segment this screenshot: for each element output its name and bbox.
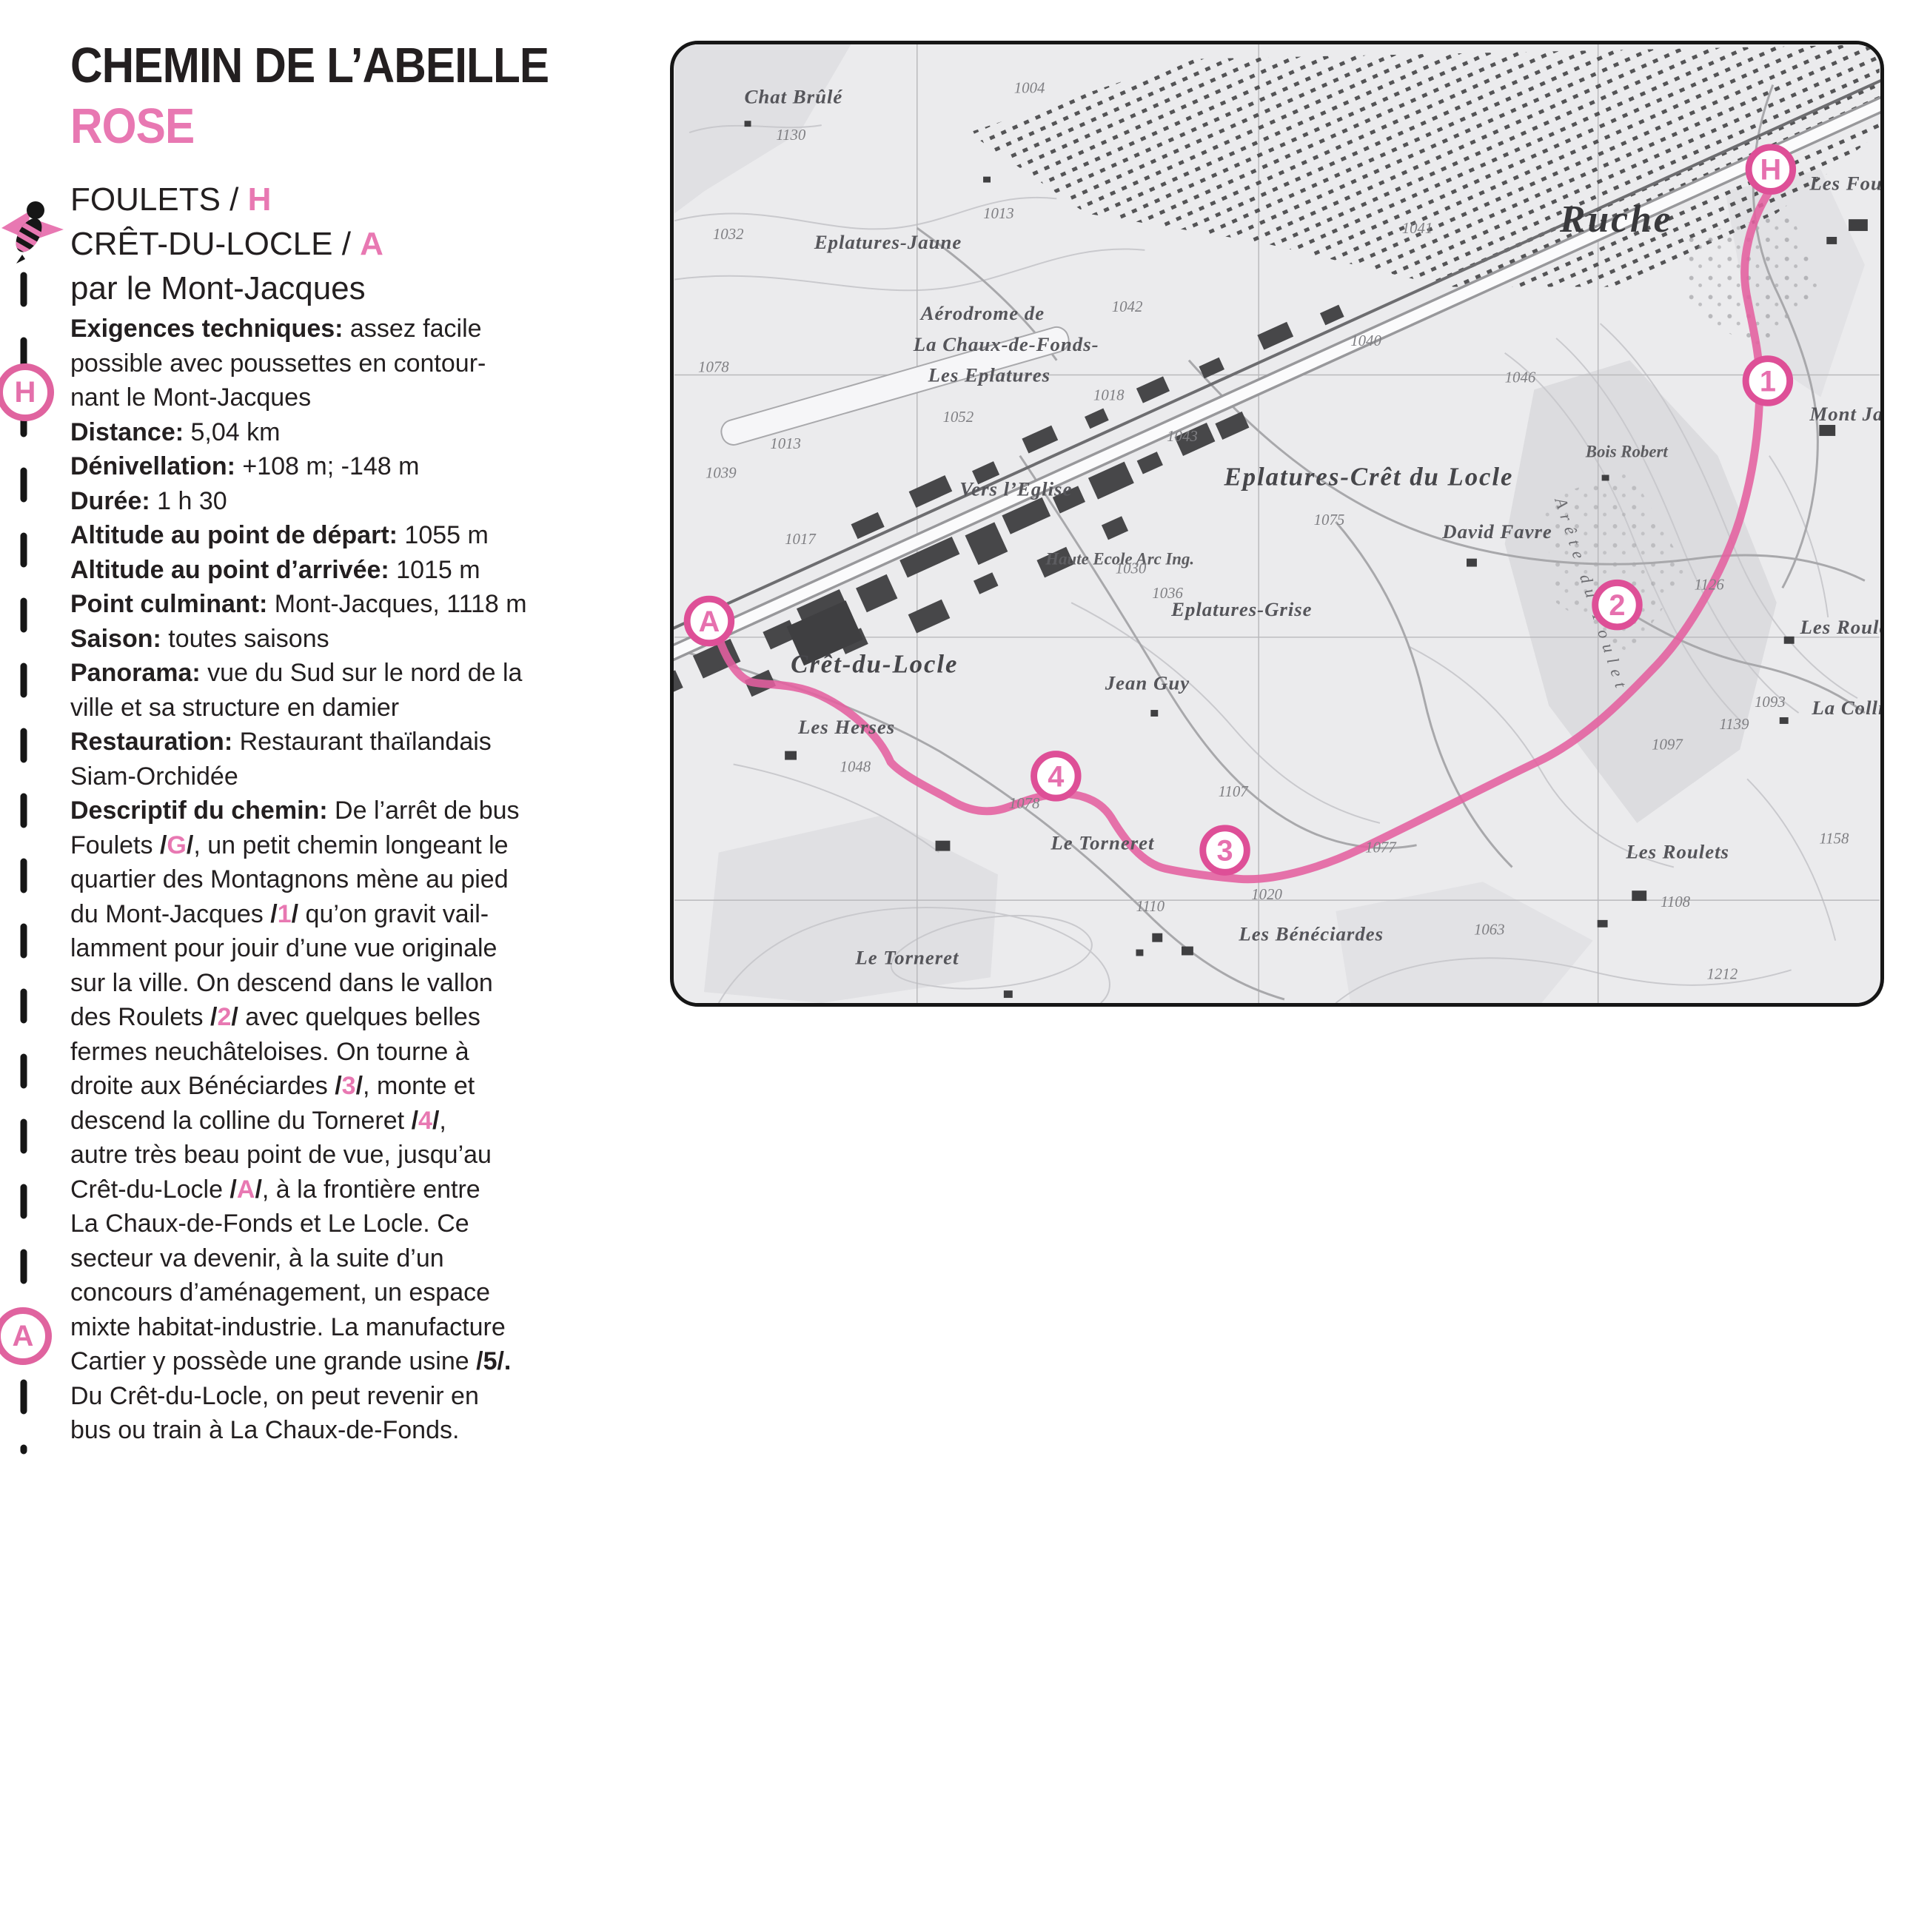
text-segment: Dénivellation: (70, 452, 235, 480)
text-segment: , monte et (363, 1072, 475, 1100)
text-segment: / (229, 1175, 236, 1204)
text-line: Saison: toutes saisons (70, 622, 633, 657)
spot-height: 1039 (706, 463, 737, 481)
text-segment: Durée: (70, 487, 150, 515)
text-line: droite aux Bénéciardes /3/, monte et (70, 1069, 633, 1104)
text-segment: / (412, 1107, 418, 1135)
text-segment: Siam-Orchidée (70, 762, 238, 791)
text-line: ville et sa structure en damier (70, 691, 633, 725)
text-line: Distance: 5,04 km (70, 415, 633, 450)
text-segment: du Mont-Jacques (70, 900, 270, 928)
text-segment: vue du Sud sur le nord de la (201, 659, 523, 687)
text-segment: / (255, 1175, 261, 1204)
text-line: Panorama: vue du Sud sur le nord de la (70, 656, 633, 691)
map-label: Ruche (1559, 198, 1673, 241)
spot-height: 1078 (1009, 794, 1040, 812)
text-line: lamment pour jouir d’une vue originale (70, 931, 633, 966)
map-label: David Favre (1441, 520, 1552, 543)
map-label: Le Torneret (854, 946, 959, 968)
page-title: CHEMIN DE L’ABEILLE (70, 36, 577, 96)
text-line: Descriptif du chemin: De l’arrêt de bus (70, 794, 633, 828)
text-line: Siam-Orchidée (70, 759, 633, 794)
text-line: secteur va devenir, à la suite d’un (70, 1241, 633, 1276)
spot-height: 1110 (1136, 897, 1165, 915)
text-line: possible avec poussettes en contour- (70, 346, 633, 381)
text-segment: , un petit chemin longeant le (193, 831, 508, 859)
map-label: Le Torneret (1050, 832, 1155, 854)
text-line: du Mont-Jacques /1/ qu’on gravit vail- (70, 897, 633, 932)
text-segment: quartier des Montagnons mène au pied (70, 865, 509, 893)
spot-height: 1108 (1661, 893, 1691, 910)
text-segment: Restaurant thaïlandais (232, 728, 492, 756)
text-segment: Cartier y possède une grande usine (70, 1347, 476, 1375)
route-header: CHEMIN DE L’ABEILLE ROSE FOULETS / HCRÊT… (70, 36, 633, 311)
map-label: Les Bénéciardes (1238, 923, 1384, 945)
spot-height: 1032 (713, 225, 744, 243)
text-segment: / (270, 900, 277, 928)
spot-height: 1126 (1695, 575, 1725, 593)
spot-height: 1130 (776, 126, 806, 144)
text-segment: Descriptif du chemin: (70, 796, 328, 825)
text-segment: FOULETS / (70, 181, 248, 218)
text-segment: De l’arrêt de bus (328, 796, 520, 825)
spot-height: 1052 (942, 408, 974, 426)
text-line: Altitude au point d’arrivée: 1015 m (70, 553, 633, 588)
map-label: Les Herses (797, 716, 895, 738)
margin-graphics (0, 0, 67, 1932)
text-line: Dénivellation: +108 m; -148 m (70, 449, 633, 484)
map-label: Les Roulets (1625, 841, 1729, 863)
text-segment: Exigences techniques: (70, 315, 343, 343)
text-segment: lamment pour jouir d’une vue originale (70, 934, 497, 962)
spot-height: 1075 (1314, 511, 1345, 529)
text-line: Altitude au point de départ: 1055 m (70, 518, 633, 553)
text-segment: , à la frontière entre (262, 1175, 480, 1204)
text-line: CRÊT-DU-LOCLE / A (70, 222, 633, 266)
text-segment: bus ou train à La Chaux-de-Fonds. (70, 1416, 459, 1444)
text-segment: / (335, 1072, 341, 1100)
text-segment: Panorama: (70, 659, 201, 687)
map-waypoint-label-3: 3 (1217, 834, 1233, 867)
text-segment: / (432, 1107, 439, 1135)
waypoint-ref: H (248, 181, 272, 218)
map-label: Eplatures-Grise (1170, 598, 1312, 620)
spot-height: 1040 (1350, 332, 1381, 349)
waypoint-ref: A (237, 1175, 255, 1204)
text-line: Crêt-du-Locle /A/, à la frontière entre (70, 1173, 633, 1207)
spot-height: 1097 (1652, 736, 1683, 754)
spot-height: 1077 (1365, 839, 1397, 856)
waypoint-ref: 4 (418, 1107, 432, 1135)
text-segment: secteur va devenir, à la suite d’un (70, 1244, 444, 1272)
topo-map[interactable]: Chat BrûléEplatures-JauneAérodrome deLa … (670, 41, 1884, 1007)
spot-height: 1107 (1219, 782, 1250, 800)
text-line: Cartier y possède une grande usine /5/. (70, 1344, 633, 1379)
map-label: Les Roulets (1800, 616, 1880, 638)
margin-start-label: H (15, 376, 36, 409)
spot-height: 1036 (1152, 584, 1183, 602)
map-waypoint-label-A: A (699, 606, 720, 638)
spot-height: 1004 (1014, 78, 1045, 96)
waypoint-ref: 2 (217, 1003, 231, 1031)
text-segment: qu’on gravit vail- (298, 900, 489, 928)
text-line: descend la colline du Torneret /4/, (70, 1104, 633, 1138)
map-label: Mont Jaques (1809, 403, 1880, 425)
text-line: Foulets /G/, un petit chemin longeant le (70, 828, 633, 863)
map-label: Les Eplatures (928, 363, 1051, 386)
map-waypoint-label-2: 2 (1609, 589, 1625, 622)
spot-height: 1017 (785, 530, 817, 548)
text-segment: 5,04 km (184, 418, 280, 446)
text-segment: nant le Mont-Jacques (70, 383, 311, 412)
text-segment: sur la ville. On descend dans le vallon (70, 969, 493, 997)
text-segment: Altitude au point d’arrivée: (70, 556, 389, 584)
text-segment: concours d’aménagement, un espace (70, 1278, 490, 1307)
map-waypoint-label-1: 1 (1760, 365, 1776, 398)
text-line: bus ou train à La Chaux-de-Fonds. (70, 1413, 633, 1448)
text-segment: toutes saisons (161, 625, 329, 653)
route-endpoints: FOULETS / HCRÊT-DU-LOCLE / Apar le Mont-… (70, 178, 633, 311)
text-segment: possible avec poussettes en contour- (70, 349, 486, 378)
map-label: Jean Guy (1105, 671, 1190, 694)
text-segment: assez facile (343, 315, 481, 343)
spot-height: 1048 (840, 757, 871, 775)
guide-page: H A CHEMIN DE L’ABEILLE ROSE FOULETS / H… (0, 0, 1930, 1932)
map-label: Eplatures-Crêt du Locle (1224, 462, 1514, 491)
spot-height: 1078 (698, 358, 729, 376)
text-line: nant le Mont-Jacques (70, 380, 633, 415)
text-segment: droite aux Bénéciardes (70, 1072, 335, 1100)
spot-height: 1063 (1474, 921, 1505, 939)
spot-height: 1013 (983, 204, 1014, 222)
text-segment: 1015 m (389, 556, 480, 584)
text-line: autre très beau point de vue, jusqu’au (70, 1138, 633, 1173)
map-label: La Chaux-de-Fonds- (913, 333, 1099, 355)
text-segment: descend la colline du Torneret (70, 1107, 412, 1135)
text-segment: par le Mont-Jacques (70, 270, 366, 306)
spot-height: 1139 (1719, 715, 1749, 733)
waypoint-ref: 3 (342, 1072, 356, 1100)
text-line: La Chaux-de-Fonds et Le Locle. Ce (70, 1207, 633, 1241)
text-segment: +108 m; -148 m (235, 452, 420, 480)
text-segment: 1055 m (398, 521, 489, 549)
text-segment: / (231, 1003, 238, 1031)
spot-height: 1046 (1505, 368, 1536, 386)
text-line: Du Crêt-du-Locle, on peut revenir en (70, 1379, 633, 1414)
text-segment: ville et sa structure en damier (70, 694, 399, 722)
text-segment: autre très beau point de vue, jusqu’au (70, 1141, 492, 1169)
text-line: par le Mont-Jacques (70, 266, 633, 311)
text-segment: CRÊT-DU-LOCLE / (70, 226, 360, 262)
text-segment: Foulets (70, 831, 160, 859)
text-line: quartier des Montagnons mène au pied (70, 862, 633, 897)
text-line: Point culminant: Mont-Jacques, 1118 m (70, 587, 633, 622)
spot-height: 1212 (1707, 965, 1738, 982)
text-line: Exigences techniques: assez facile (70, 312, 633, 346)
spot-height: 1013 (770, 435, 801, 452)
text-segment: / (187, 831, 193, 859)
map-label: Aérodrome de (919, 302, 1045, 324)
text-segment: , (439, 1107, 446, 1135)
text-segment: fermes neuchâteloises. On tourne à (70, 1038, 469, 1066)
waypoint-ref: G (167, 831, 186, 859)
text-segment: 1 h 30 (150, 487, 227, 515)
spot-height: 1041 (1402, 219, 1433, 237)
text-segment: Altitude au point de départ: (70, 521, 398, 549)
bee-icon (1, 201, 64, 264)
text-line: Restauration: Restaurant thaïlandais (70, 725, 633, 759)
text-line: FOULETS / H (70, 178, 633, 222)
text-line: des Roulets /2/ avec quelques belles (70, 1000, 633, 1035)
map-label: La Collière (1811, 697, 1880, 719)
spot-height: 1043 (1167, 427, 1198, 445)
spot-height: 1093 (1755, 693, 1786, 711)
text-segment: des Roulets (70, 1003, 210, 1031)
text-line: fermes neuchâteloises. On tourne à (70, 1035, 633, 1070)
waypoint-ref: A (360, 226, 383, 262)
text-segment: Distance: (70, 418, 184, 446)
text-segment: / (160, 831, 167, 859)
map-label: Les Foulets (1809, 172, 1880, 194)
route-description: Exigences techniques: assez facilepossib… (70, 312, 633, 1448)
text-segment: /5/. (476, 1347, 511, 1375)
text-segment: / (292, 900, 298, 928)
text-segment: mixte habitat-industrie. La manufacture (70, 1313, 506, 1341)
spot-height: 1020 (1251, 885, 1282, 903)
text-line: Durée: 1 h 30 (70, 484, 633, 519)
map-label: Chat Brûlé (745, 85, 843, 107)
map-label: Bois Robert (1585, 443, 1669, 461)
text-segment: Saison: (70, 625, 161, 653)
map-waypoint-label-H: H (1760, 154, 1782, 187)
spot-height: 1018 (1093, 386, 1125, 403)
waypoint-ref: 1 (278, 900, 292, 928)
spot-height: 1030 (1116, 559, 1147, 577)
spot-height: 1042 (1112, 298, 1143, 315)
route-color-name: ROSE (70, 96, 577, 157)
map-label: Eplatures-Jaune (814, 231, 962, 253)
text-line: sur la ville. On descend dans le vallon (70, 966, 633, 1001)
topo-map-canvas: Chat BrûléEplatures-JauneAérodrome deLa … (674, 44, 1880, 1003)
map-label: Vers l’Eglise (959, 477, 1072, 500)
text-segment: Du Crêt-du-Locle, on peut revenir en (70, 1382, 479, 1410)
route-margin-rail: H A (0, 0, 67, 1932)
text-segment: Mont-Jacques, 1118 m (267, 590, 526, 618)
text-segment: Restauration: (70, 728, 232, 756)
text-segment: La Chaux-de-Fonds et Le Locle. Ce (70, 1210, 469, 1238)
margin-end-label: A (13, 1320, 34, 1353)
text-segment: Crêt-du-Locle (70, 1175, 229, 1204)
text-segment: / (356, 1072, 363, 1100)
map-waypoint-label-4: 4 (1048, 760, 1064, 793)
text-line: concours d’aménagement, un espace (70, 1275, 633, 1310)
text-segment: Point culminant: (70, 590, 267, 618)
text-segment: avec quelques belles (238, 1003, 480, 1031)
map-label: Crêt-du-Locle (791, 649, 958, 678)
spot-height: 1158 (1819, 830, 1849, 848)
text-line: mixte habitat-industrie. La manufacture (70, 1310, 633, 1345)
